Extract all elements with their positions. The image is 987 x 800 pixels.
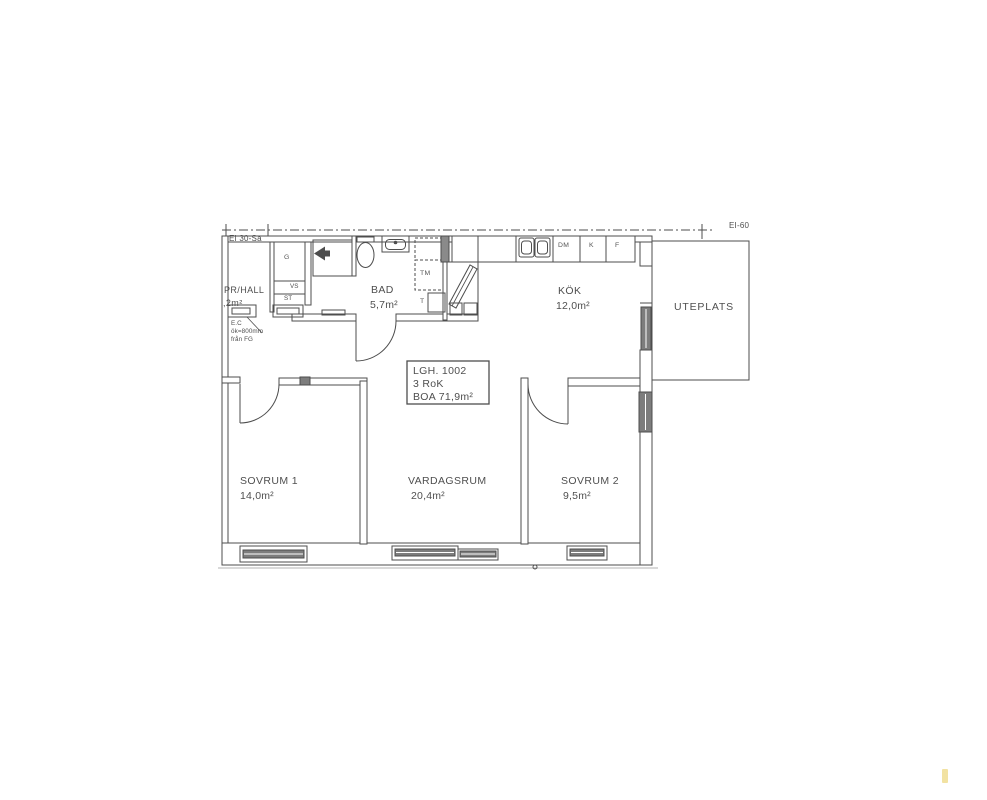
fire-class-right-label: EI-60: [729, 222, 749, 230]
bath-west-wall: [352, 236, 356, 276]
room-label-hall: PR/HALL: [224, 286, 264, 295]
toilet-icon: [357, 237, 374, 268]
closet-label-garderob: G: [284, 255, 290, 262]
kitchen-counter: [452, 236, 635, 262]
room-label-kok: KÖK: [558, 286, 581, 297]
survey-point: [533, 565, 537, 569]
closet-label-vs: VS: [290, 284, 299, 290]
room-label-sovrum1: SOVRUM 1: [240, 476, 298, 487]
entry-area: [313, 240, 352, 276]
window-sovrum2-east: [639, 392, 652, 432]
right-wall-seg3: [640, 432, 652, 565]
titlebox-boa-area: BOA 71,9m²: [413, 392, 473, 403]
window-sovrum2: [567, 546, 607, 560]
label-kyl: K: [589, 243, 594, 250]
right-wall-seg1: [640, 242, 652, 266]
closet-east-wall: [305, 242, 311, 305]
ground-line: [218, 565, 658, 569]
window-sovrum1: [240, 546, 307, 562]
room-area-bad: 5,7m²: [370, 300, 398, 311]
closet-label-stad: ST: [284, 296, 292, 302]
titlebox-apartment-number: LGH. 1002: [413, 366, 466, 377]
room-label-uteplats: UTEPLATS: [674, 302, 734, 313]
sovrum1-top-wall: [279, 378, 367, 385]
wall-cap: [300, 377, 310, 385]
shaft-hatch: [441, 236, 449, 262]
room-label-bad: BAD: [371, 285, 394, 296]
room-area-sovrum2: 9,5m²: [563, 491, 591, 502]
shaft-diagonal: [449, 265, 477, 308]
ec-annotation-line3: från FG: [231, 337, 253, 343]
torktumlare-box: [428, 293, 445, 312]
floorplan-page: EI 30-Sa EI-60 PR/HALL ,2m² E.C ök=800mm…: [0, 0, 987, 800]
ec-annotation-line2: ök=800mm: [231, 329, 263, 335]
label-torktumlare: T: [420, 299, 425, 306]
room-label-vardagsrum: VARDAGSRUM: [408, 476, 486, 487]
window-kok-east: [641, 307, 651, 350]
partition-sovrum1-vardagsrum: [360, 381, 367, 544]
room-area-hall: ,2m²: [223, 299, 243, 308]
right-wall-seg2: [640, 350, 652, 392]
bath-door: [356, 321, 396, 361]
entry-arrow-icon: [314, 247, 330, 261]
partition-vardagsrum-sovrum2: [521, 378, 528, 544]
ec-annotation-line1: E.C: [231, 321, 242, 327]
floorplan-drawing: [0, 0, 987, 800]
entry-door-swing: [313, 240, 352, 276]
room-area-sovrum1: 14,0m²: [240, 491, 274, 502]
label-tvattmaskin: TM: [420, 271, 431, 278]
sovrum2-top-wall: [568, 378, 640, 386]
closet-west-wall: [270, 242, 274, 312]
sovrum1-door: [240, 384, 279, 423]
hall-wall-stub: [222, 377, 240, 383]
label-frys: F: [615, 243, 620, 250]
room-area-kok: 12,0m²: [556, 301, 590, 312]
label-diskmaskin: DM: [558, 243, 569, 250]
fire-class-left-label: EI 30-Sa: [229, 235, 262, 243]
windows: [240, 307, 652, 562]
sovrum2-door: [528, 384, 568, 424]
window-vardagsrum-low: [458, 549, 498, 560]
page-accent-mark: [942, 769, 948, 783]
room-label-sovrum2: SOVRUM 2: [561, 476, 619, 487]
titlebox-room-count: 3 RoK: [413, 379, 444, 390]
window-vardagsrum: [392, 546, 458, 560]
room-area-vardagsrum: 20,4m²: [411, 491, 445, 502]
